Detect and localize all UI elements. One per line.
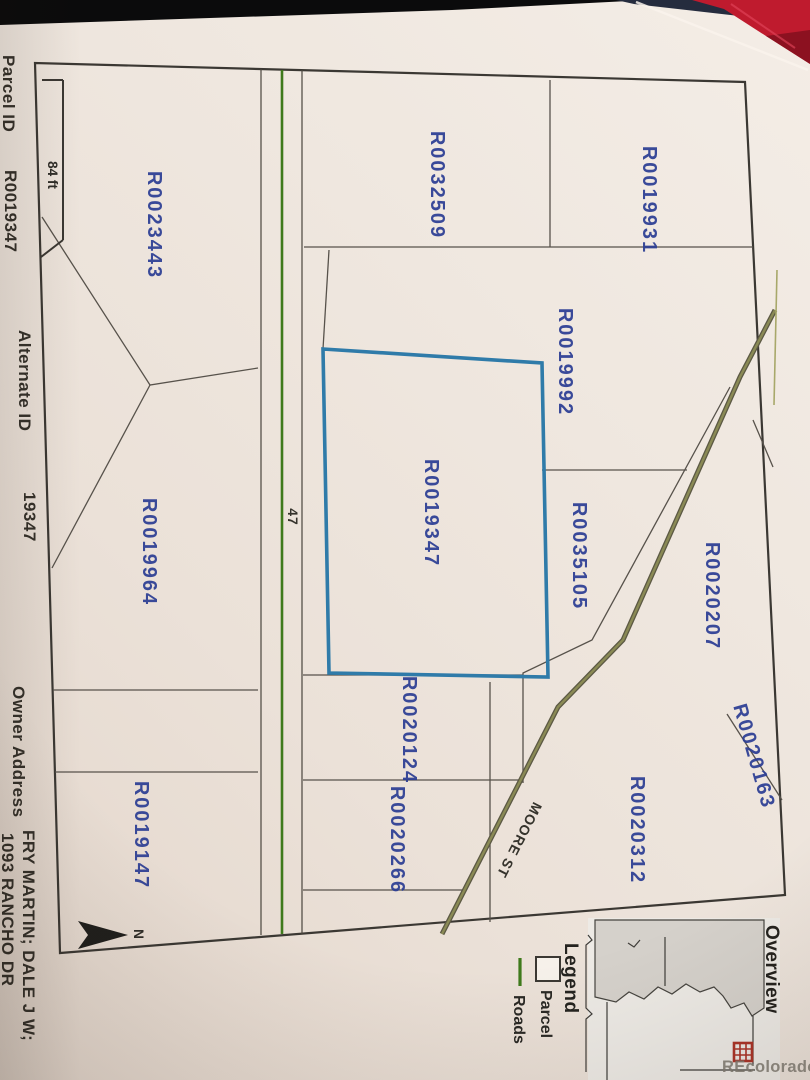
parcel-label-R0032509: R0032509	[426, 131, 448, 239]
parcel-label-R0019964: R0019964	[138, 498, 160, 606]
north-arrow-icon	[78, 921, 128, 949]
parcel-label-R0023443: R0023443	[143, 171, 165, 279]
road-moore-st	[442, 270, 777, 934]
parcel-label-R0020266: R0020266	[386, 786, 408, 894]
overview-inset-map	[586, 918, 780, 1080]
legend-roads-label: Roads	[510, 995, 527, 1044]
parcel-label-R0035105: R0035105	[568, 502, 590, 610]
parcel-label-R0019992: R0019992	[554, 308, 576, 416]
parcel-label-R0020124: R0020124	[398, 676, 420, 784]
parcel-label-R0020163: R0020163	[728, 701, 779, 811]
road-47-label: 47	[285, 508, 301, 526]
moore-st-label: MOORE ST	[494, 800, 546, 881]
listing-photo: 84 ft N	[0, 0, 810, 1080]
alternate-id-label: Alternate ID	[15, 330, 34, 431]
parcel-label-R0019347: R0019347	[420, 459, 442, 567]
parcel-id-value: R0019347	[1, 170, 20, 252]
scale-bar-label: 84 ft	[45, 161, 60, 189]
overview-title: Overview	[761, 925, 782, 1014]
parcel-label-R0020207: R0020207	[701, 542, 723, 650]
owner-address-label: Owner Address	[9, 686, 28, 818]
info-bar: Parcel ID R0019347 Alternate ID 19347 Ow…	[0, 55, 39, 1041]
north-arrow-label: N	[131, 929, 146, 939]
legend-title: Legend	[560, 943, 581, 1014]
legend-parcel-square-icon	[536, 957, 560, 981]
parcel-map-document: 84 ft N	[0, 0, 810, 1080]
parcel-label-R0019147: R0019147	[130, 781, 152, 889]
owner-address-line2: 1093 RANCHO DR	[0, 833, 17, 986]
owner-address-line1: FRY MARTIN; DALE J W;	[19, 830, 38, 1041]
parcel-map-svg: 84 ft N	[0, 0, 810, 1080]
legend-parcel-label: Parcel	[537, 990, 554, 1038]
road-47	[261, 69, 302, 935]
parcel-id-label: Parcel ID	[0, 55, 18, 132]
alternate-id-value: 19347	[20, 492, 39, 542]
parcel-label-R0020312: R0020312	[626, 776, 648, 884]
margin-road-line	[774, 270, 777, 405]
recolorado-watermark: REcolorado	[722, 1058, 810, 1077]
parcel-label-R0019931: R0019931	[638, 146, 660, 254]
